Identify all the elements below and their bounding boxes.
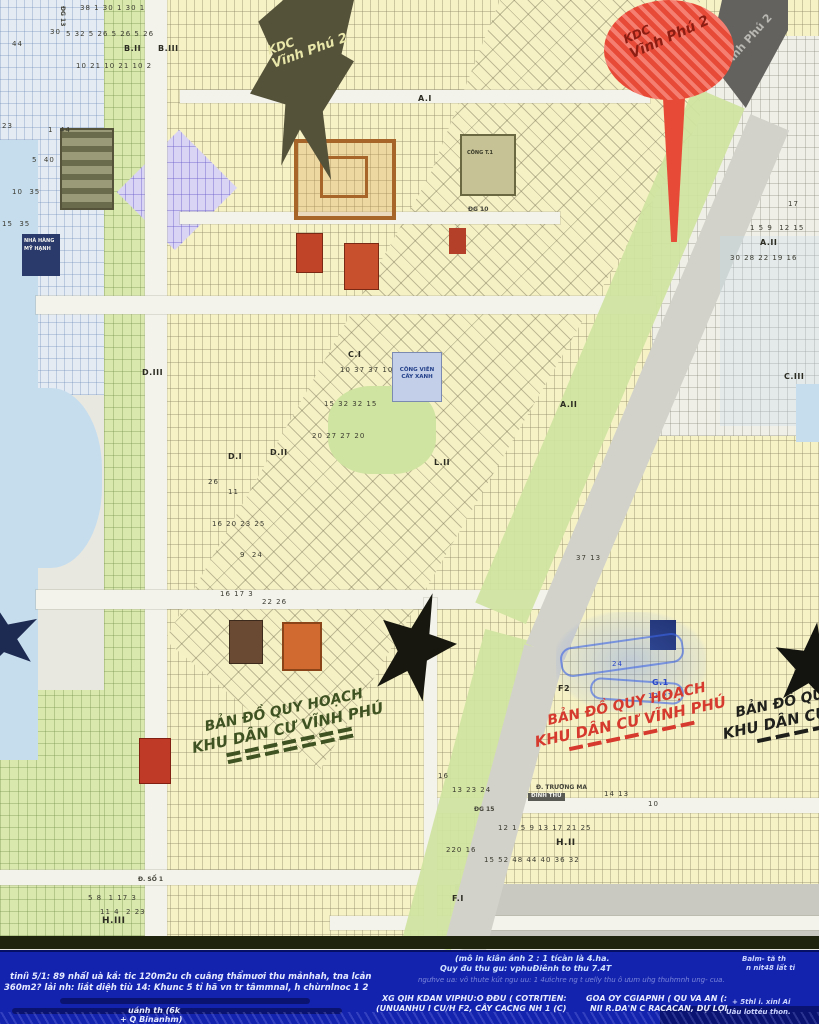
road-middle <box>36 296 656 314</box>
parcel-number: 44 <box>12 40 23 48</box>
road-top <box>180 90 650 103</box>
building-red-a <box>296 233 323 273</box>
building-olive-complex <box>60 128 114 210</box>
lake <box>0 388 102 568</box>
footer-smudge <box>60 998 310 1004</box>
parcel-number: 5 32 5 26 5 26 5 26 <box>66 30 154 38</box>
block-label: H.III <box>102 916 126 926</box>
block-label: C.III <box>784 372 804 381</box>
parcel-number: 23 <box>2 122 13 130</box>
block-label: D.III <box>142 368 163 377</box>
block-label: D.II <box>270 448 288 457</box>
parcel-number: 5 40 <box>32 156 55 164</box>
parcel-number: 26 <box>208 478 219 486</box>
park-building: CÔNG VIÊN CÂY XANH <box>392 352 442 402</box>
block-label: B.II <box>124 44 141 53</box>
parcel-number: 30 28 22 19 16 <box>730 254 797 262</box>
parcel-number: 22 26 <box>262 598 287 606</box>
parcel-number: 16 20 23 25 <box>212 520 265 528</box>
footer-banner: (mô in kiân ánh 2 : 1 tícàn là 4.ha. Quy… <box>0 950 819 1024</box>
road-vertical-west <box>145 0 167 948</box>
footer-note2: Quy đu thu gu: vphuĐiênh to thu 7.4T <box>440 964 611 973</box>
building-orange-square <box>282 622 322 671</box>
road-bottom <box>330 916 819 930</box>
block-label: C.I <box>348 350 361 359</box>
block-label: D.I <box>228 452 242 461</box>
block-label: A.I <box>418 94 432 103</box>
parcel-number: 5 8 1 17 3 <box>88 894 137 902</box>
footer-bold-right1: GOA ƠY CGIAPNH ( QU VA AN (: <box>586 994 727 1003</box>
footer-hatch-pattern <box>0 1012 819 1024</box>
parcel-number: 30 <box>50 28 61 36</box>
parcel-number: 11 <box>228 488 239 496</box>
building-brown <box>229 620 263 664</box>
block-label: B.III <box>158 44 179 53</box>
street-label: ĐG 13 <box>59 6 66 26</box>
parcel-number: 10 35 <box>12 188 40 196</box>
footer-para1: tiníì 5/1: 89 nhấl uà kắ: tic 120m2u ch … <box>10 972 371 982</box>
footer-right3: + 5thl i. xinl Ai <box>732 998 790 1006</box>
parcel-number: 9 24 <box>240 551 263 559</box>
parcel-number: 12 1 5 9 13 17 21 25 <box>498 824 591 832</box>
parcel-number: 14 13 <box>604 790 629 798</box>
block-label: F2 <box>558 684 570 693</box>
parcel-number: 15 52 48 44 40 36 32 <box>484 856 580 864</box>
parcel-number: 220 16 <box>446 846 477 854</box>
parcel-number: 10 21 10 21 10 2 <box>76 62 152 70</box>
factory-label: CÔNG T.1 <box>467 150 493 156</box>
block-label: F.I <box>452 894 464 903</box>
parcel-number: 15 32 32 15 <box>324 400 377 408</box>
footer-faint1: ngưhve ua: vô thute kút ngu uu: 1 4ưichr… <box>418 976 725 984</box>
park-label-line2: CÂY XANH <box>393 374 441 381</box>
parcel-number: 10 37 37 10 <box>340 366 393 374</box>
footer-right1: Balm- tă th <box>742 955 786 963</box>
parcel-number: 11 4 2 23 <box>100 908 146 916</box>
parcel-number: 37 13 <box>576 554 601 562</box>
street-tag-text: ĐÌNH THỦ <box>531 793 562 799</box>
block-label: H.II <box>556 838 576 848</box>
building-red-b <box>344 243 379 290</box>
footer-note1: (mô in kiân ánh 2 : 1 tícàn là 4.ha. <box>455 954 610 963</box>
parcel-number: 13 23 24 <box>452 786 491 794</box>
street-label: ĐG 15 <box>474 806 494 813</box>
street-label: ĐG 10 <box>468 206 488 213</box>
parcel-number: 20 27 27 20 <box>312 432 365 440</box>
block-label: L.II <box>434 458 450 467</box>
street-tag: ĐÌNH THỦ <box>528 793 565 801</box>
building-restaurant: NHÀ HÀNG MỸ HẠNH <box>22 234 60 276</box>
parcel-number: 24 <box>612 660 623 668</box>
street-label: Đ. SỐ 1 <box>138 876 163 883</box>
pin-tail <box>662 80 686 242</box>
road-so-1 <box>0 870 460 885</box>
parcel-number: 38 1 30 1 30 1 <box>80 4 145 12</box>
tree-row-bottom <box>0 936 819 949</box>
street-label: Đ. TRƯƠNG MA <box>536 784 587 791</box>
footer-right2: n nit48 lất ti <box>746 964 795 972</box>
parcel-number: 15 35 <box>2 220 30 228</box>
building-red-c <box>139 738 171 784</box>
restaurant-label-line1: NHÀ HÀNG <box>24 238 54 244</box>
parcel-number: 1 44 <box>48 126 71 134</box>
block-label: A.II <box>560 400 577 409</box>
footer-bold-left1: XG QIH KDAN VIPHU:O ĐĐU ( COTRITIEN: <box>382 994 567 1003</box>
pin-marker-group: Vĩnh Phú 2 KDC Vĩnh Phú 2 <box>600 0 800 250</box>
building-factory: CÔNG T.1 <box>460 134 516 196</box>
restaurant-label-line2: MỸ HẠNH <box>24 246 51 252</box>
zoning-map: CÔNG VIÊN CÂY XANH CÔNG T.1 NHÀ HÀNG MỸ … <box>0 0 819 950</box>
parcel-number: 16 <box>438 772 449 780</box>
footer-para2: 360m2? lải nh: liắt diệh tiù 14: Khunc 5… <box>4 983 368 993</box>
building-red-small <box>449 228 466 254</box>
block-label: G.1 <box>652 678 669 687</box>
building-school-outline <box>294 139 396 220</box>
river-right-soft <box>720 236 819 426</box>
parcel-number: 16 17 3 <box>220 590 254 598</box>
parcel-number: 10 <box>648 800 659 808</box>
